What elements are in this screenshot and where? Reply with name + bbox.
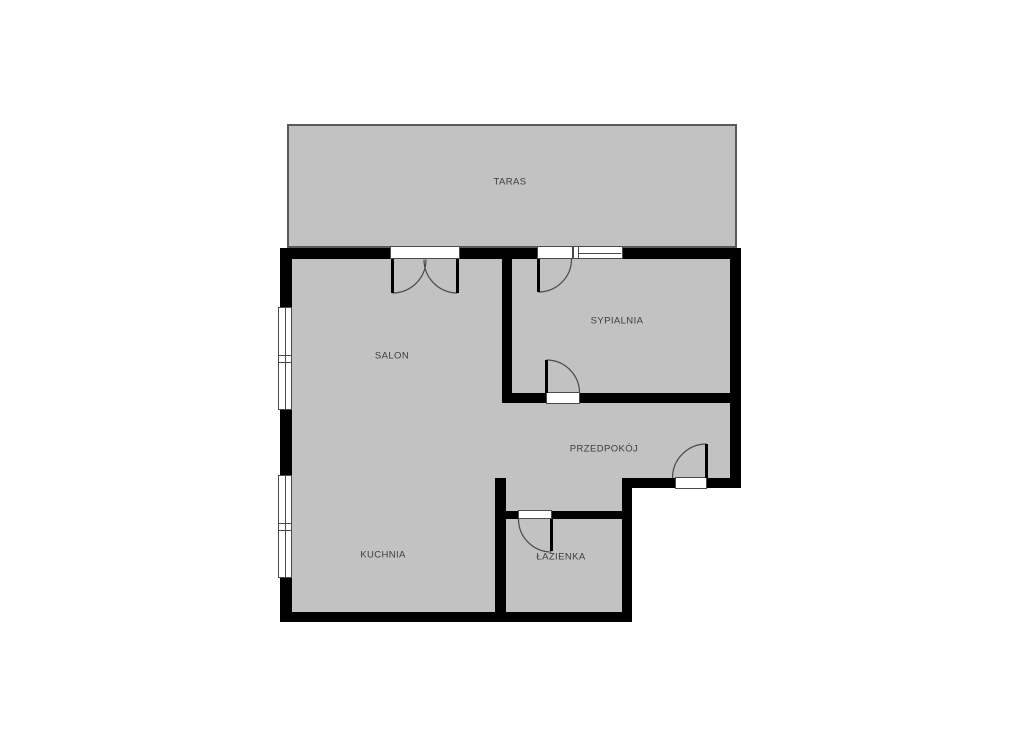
- wall-right: [730, 248, 741, 488]
- room-label-sypialnia: SYPIALNIA: [591, 316, 644, 327]
- door-opening-bedroom-hall: [546, 392, 580, 404]
- room-label-taras: TARAS: [494, 177, 527, 188]
- door-opening-bathroom: [518, 510, 552, 519]
- window-salon: [278, 307, 292, 410]
- door-opening-terrace-bedroom: [537, 246, 573, 259]
- door-opening-terrace-salon: [390, 246, 460, 259]
- wall-bedroom-hall: [502, 393, 741, 403]
- door-opening-entrance: [675, 477, 707, 489]
- room-label-lazienka: ŁAZIENKA: [536, 552, 585, 563]
- room-label-kuchnia: KUCHNIA: [360, 550, 406, 561]
- window-kitchen: [278, 475, 292, 578]
- wall-kitchen-bathroom: [495, 478, 506, 622]
- wall-salon-bedroom: [502, 248, 512, 403]
- wall-bottom: [280, 612, 632, 622]
- wall-bathroom-right: [622, 478, 632, 622]
- floor-plan: TARAS SALON SYPIALNIA PRZEDPOKÓJ KUCHNIA…: [0, 0, 1024, 749]
- window-bedroom: [573, 246, 623, 259]
- room-label-salon: SALON: [375, 351, 409, 362]
- room-label-przedpokoj: PRZEDPOKÓJ: [570, 444, 638, 455]
- wall-bathroom-top: [495, 511, 632, 519]
